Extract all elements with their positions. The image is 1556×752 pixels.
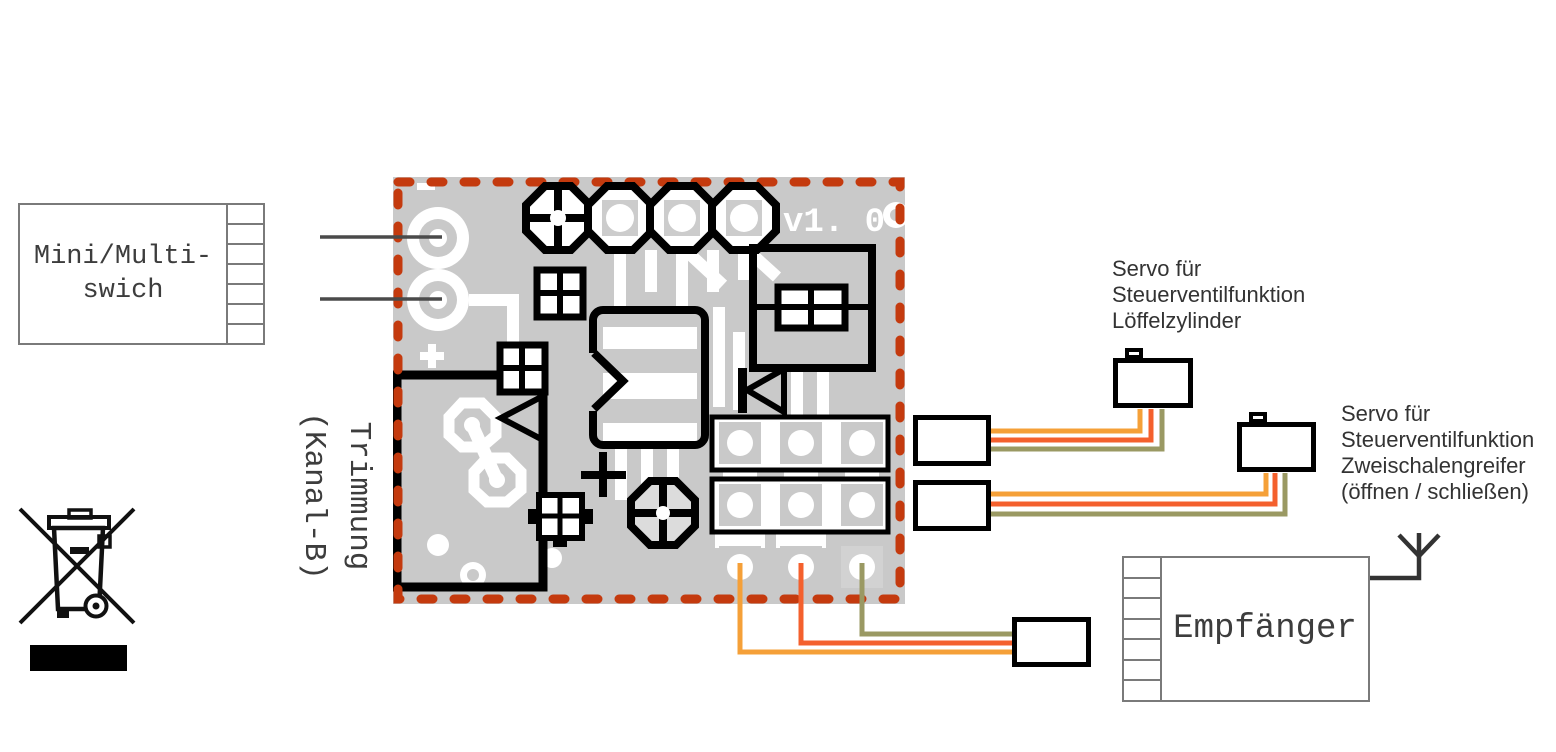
weee-black-bar [30,645,127,671]
wiring-diagram: v1. 0 [0,0,1556,752]
servo1-label-line1: Servo für [1112,256,1305,282]
servo1-box [1113,358,1193,408]
connector-cell [1124,579,1160,600]
mini-switch-label: Mini/Multi- swich [20,205,226,343]
antenna-icon [1369,533,1439,578]
servo2-box [1237,422,1316,472]
servo2-plug [913,480,991,531]
mini-switch-connector [226,205,263,343]
receiver-connector [1124,558,1162,700]
connector-cell [1124,558,1160,579]
servo2-label: Servo für Steuerventilfunktion Zweischal… [1341,401,1534,505]
receiver-box: Empfänger [1122,556,1370,702]
connector-cell [228,205,263,225]
trim-channel-label: Trimmung (Kanal-B) [291,386,381,606]
servo1-label-line2: Steuerventilfunktion [1112,282,1305,308]
connector-cell [228,225,263,245]
servo1-plug [913,415,991,466]
weee-bin-icon [20,509,134,623]
servo2-label-line4: (öffnen / schließen) [1341,479,1534,505]
servo1-wires [990,409,1162,449]
servo2-label-line3: Zweischalengreifer [1341,453,1534,479]
connector-cell [1124,599,1160,620]
receiver-label: Empfänger [1162,558,1368,700]
connector-cell [228,305,263,325]
connector-cell [228,265,263,285]
receiver-plug [1012,617,1091,667]
connector-cell [1124,620,1160,641]
mini-switch-label-line2: swich [82,274,163,308]
connector-cell [1124,640,1160,661]
connector-cell [1124,681,1160,700]
trim-label-line1: Trimmung [336,386,381,606]
connector-cell [1124,661,1160,682]
servo1-label-line3: Löffelzylinder [1112,308,1305,334]
mini-switch-label-line1: Mini/Multi- [34,240,212,274]
connector-cell [228,325,263,343]
servo1-label: Servo für Steuerventilfunktion Löffelzyl… [1112,256,1305,334]
receiver-wires [740,563,1013,652]
mini-switch-box: Mini/Multi- swich [18,203,265,345]
connector-cell [228,285,263,305]
servo2-wires [990,473,1285,514]
connector-cell [228,245,263,265]
servo2-label-line2: Steuerventilfunktion [1341,427,1534,453]
trim-label-line2: (Kanal-B) [291,386,336,606]
servo2-label-line1: Servo für [1341,401,1534,427]
